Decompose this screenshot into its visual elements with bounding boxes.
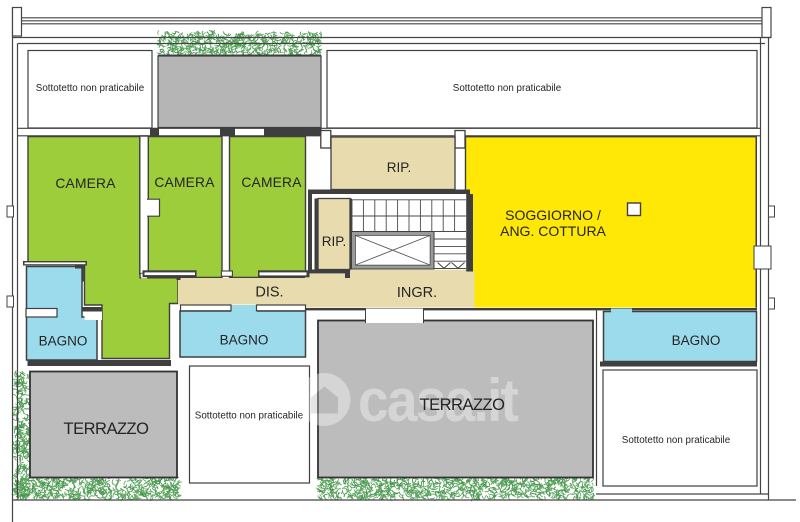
svg-text:BAGNO: BAGNO: [220, 333, 269, 348]
svg-text:Sottotetto non praticabile: Sottotetto non praticabile: [36, 83, 145, 94]
svg-text:BAGNO: BAGNO: [39, 334, 88, 349]
svg-text:Sottotetto non praticabile: Sottotetto non praticabile: [453, 83, 562, 94]
svg-text:Sottotetto non praticabile: Sottotetto non praticabile: [622, 435, 731, 446]
svg-text:SOGGIORNO /: SOGGIORNO /: [505, 207, 601, 223]
svg-text:INGR.: INGR.: [397, 285, 437, 301]
svg-text:CAMERA: CAMERA: [241, 175, 302, 190]
svg-text:CAMERA: CAMERA: [55, 176, 116, 191]
svg-text:BAGNO: BAGNO: [672, 333, 721, 348]
svg-text:RIP.: RIP.: [387, 160, 412, 175]
svg-text:TERRAZZO: TERRAZZO: [420, 396, 506, 414]
svg-text:RIP.: RIP.: [322, 234, 347, 249]
svg-text:DIS.: DIS.: [255, 285, 283, 301]
svg-text:Sottotetto non praticabile: Sottotetto non praticabile: [195, 411, 304, 422]
svg-text:CAMERA: CAMERA: [154, 175, 215, 190]
svg-text:TERRAZZO: TERRAZZO: [64, 420, 150, 438]
svg-text:ANG. COTTURA: ANG. COTTURA: [500, 223, 606, 239]
